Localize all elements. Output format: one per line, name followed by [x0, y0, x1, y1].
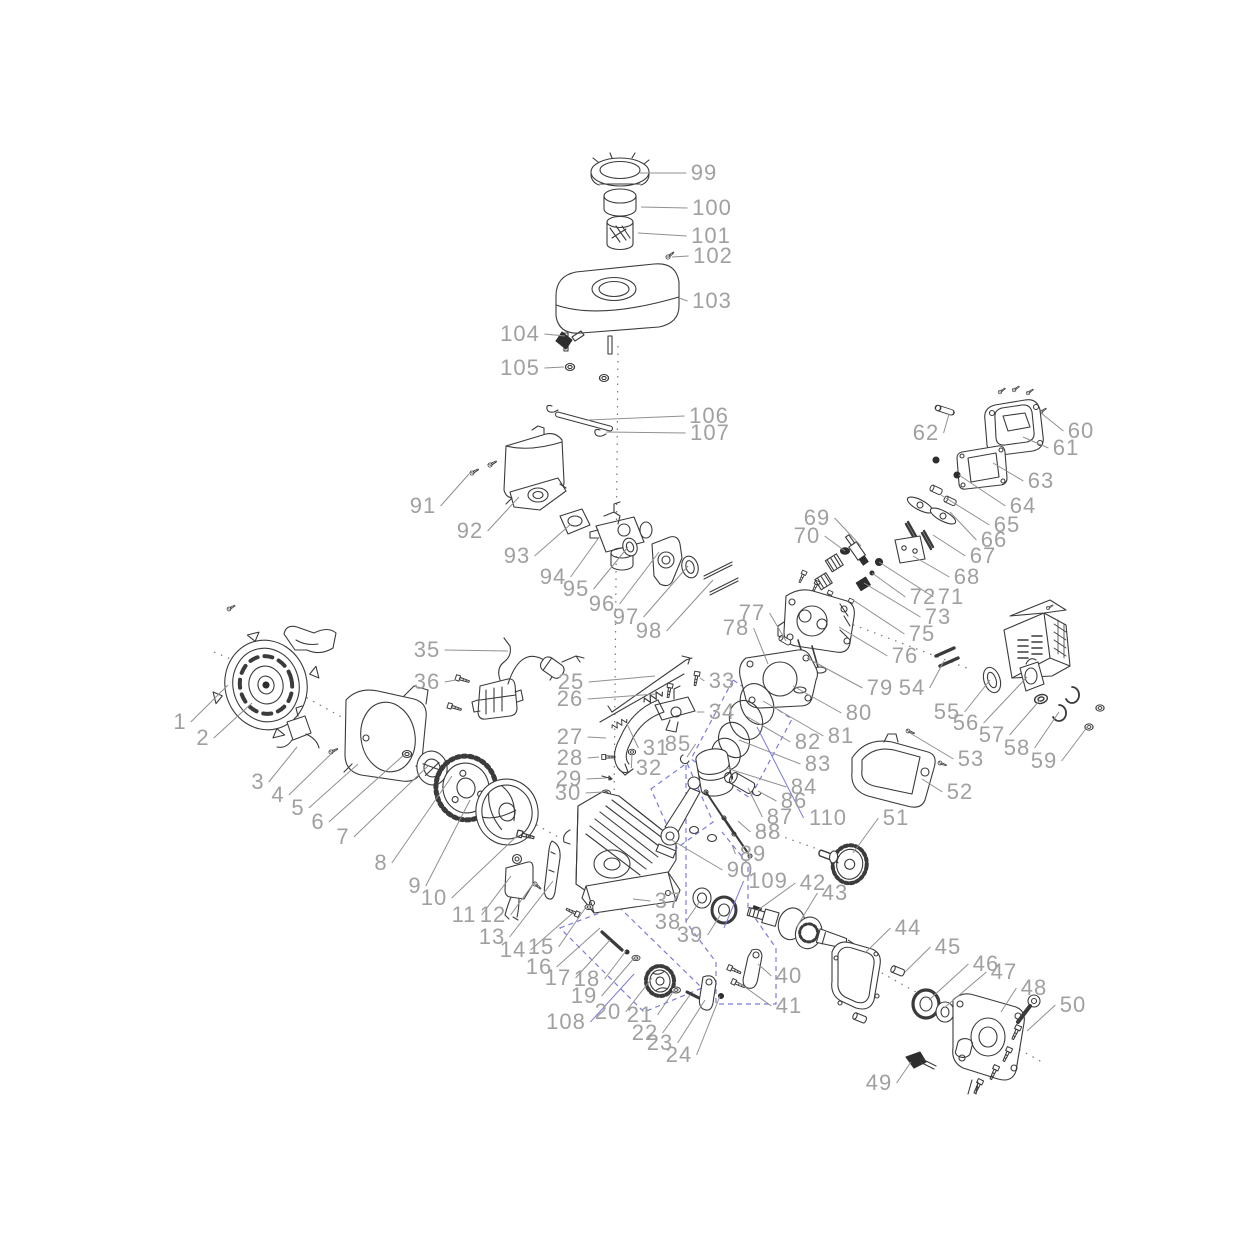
part-label-50: 50 [1060, 994, 1086, 1016]
part-label-1: 1 [173, 711, 186, 733]
part-label-92: 92 [457, 520, 483, 542]
part-label-57: 57 [979, 724, 1005, 746]
part-label-36: 36 [414, 671, 440, 693]
part-label-81: 81 [828, 725, 854, 747]
part-label-78: 78 [723, 617, 749, 639]
part-label-63: 63 [1028, 470, 1054, 492]
part-label-102: 102 [693, 245, 733, 267]
part-label-88: 88 [755, 821, 781, 843]
part-label-19: 19 [571, 985, 597, 1007]
part-label-33: 33 [709, 670, 735, 692]
part-label-58: 58 [1004, 737, 1030, 759]
part-label-104: 104 [500, 323, 540, 345]
part-label-79: 79 [867, 677, 893, 699]
part-label-105: 105 [500, 357, 540, 379]
part-label-82: 82 [795, 731, 821, 753]
part-label-59: 59 [1031, 750, 1057, 772]
part-label-62: 62 [913, 422, 939, 444]
part-label-108: 108 [546, 1011, 586, 1033]
part-label-83: 83 [805, 753, 831, 775]
part-label-20: 20 [595, 1001, 621, 1023]
part-label-7: 7 [336, 826, 349, 848]
part-label-44: 44 [895, 917, 921, 939]
part-label-110: 110 [809, 807, 847, 829]
part-label-10: 10 [421, 887, 447, 909]
part-label-107: 107 [690, 422, 730, 444]
part-label-91: 91 [410, 495, 436, 517]
part-label-11: 11 [452, 904, 477, 926]
part-label-40: 40 [776, 965, 802, 987]
part-label-2: 2 [196, 727, 209, 749]
part-label-41: 41 [776, 995, 802, 1017]
part-label-17: 17 [545, 967, 571, 989]
part-label-9: 9 [408, 875, 421, 897]
part-label-43: 43 [822, 882, 848, 904]
part-labels: 1234567891011121314151617181920212223242… [0, 0, 1248, 1248]
part-label-80: 80 [846, 702, 872, 724]
part-label-8: 8 [374, 852, 387, 874]
part-label-54: 54 [899, 677, 925, 699]
part-label-99: 99 [691, 162, 717, 184]
part-label-5: 5 [291, 797, 304, 819]
part-label-32: 32 [636, 757, 662, 779]
part-label-61: 61 [1053, 437, 1079, 459]
part-label-95: 95 [563, 578, 589, 600]
part-label-96: 96 [589, 593, 615, 615]
part-label-26: 26 [557, 688, 583, 710]
part-label-53: 53 [958, 748, 984, 770]
part-label-34: 34 [709, 701, 735, 723]
part-label-51: 51 [883, 807, 909, 829]
part-label-12: 12 [480, 904, 506, 926]
part-label-103: 103 [692, 290, 732, 312]
part-label-98: 98 [636, 620, 662, 642]
part-label-100: 100 [692, 197, 732, 219]
part-label-14: 14 [500, 939, 526, 961]
part-label-35: 35 [414, 639, 440, 661]
part-label-48: 48 [1021, 977, 1047, 999]
part-label-47: 47 [991, 961, 1017, 983]
part-label-6: 6 [311, 811, 324, 833]
diagram-canvas: 1234567891011121314151617181920212223242… [0, 0, 1248, 1248]
part-label-4: 4 [271, 784, 284, 806]
part-label-30: 30 [555, 782, 581, 804]
part-label-39: 39 [677, 924, 703, 946]
part-label-52: 52 [947, 781, 973, 803]
part-label-76: 76 [892, 645, 918, 667]
part-label-93: 93 [504, 545, 530, 567]
part-label-56: 56 [953, 712, 979, 734]
part-label-85: 85 [665, 733, 691, 755]
part-label-45: 45 [935, 936, 961, 958]
part-label-49: 49 [866, 1072, 892, 1094]
part-label-24: 24 [666, 1044, 692, 1066]
part-label-70: 70 [794, 525, 820, 547]
part-label-75: 75 [909, 623, 935, 645]
part-label-3: 3 [251, 771, 264, 793]
part-label-109: 109 [748, 870, 788, 892]
